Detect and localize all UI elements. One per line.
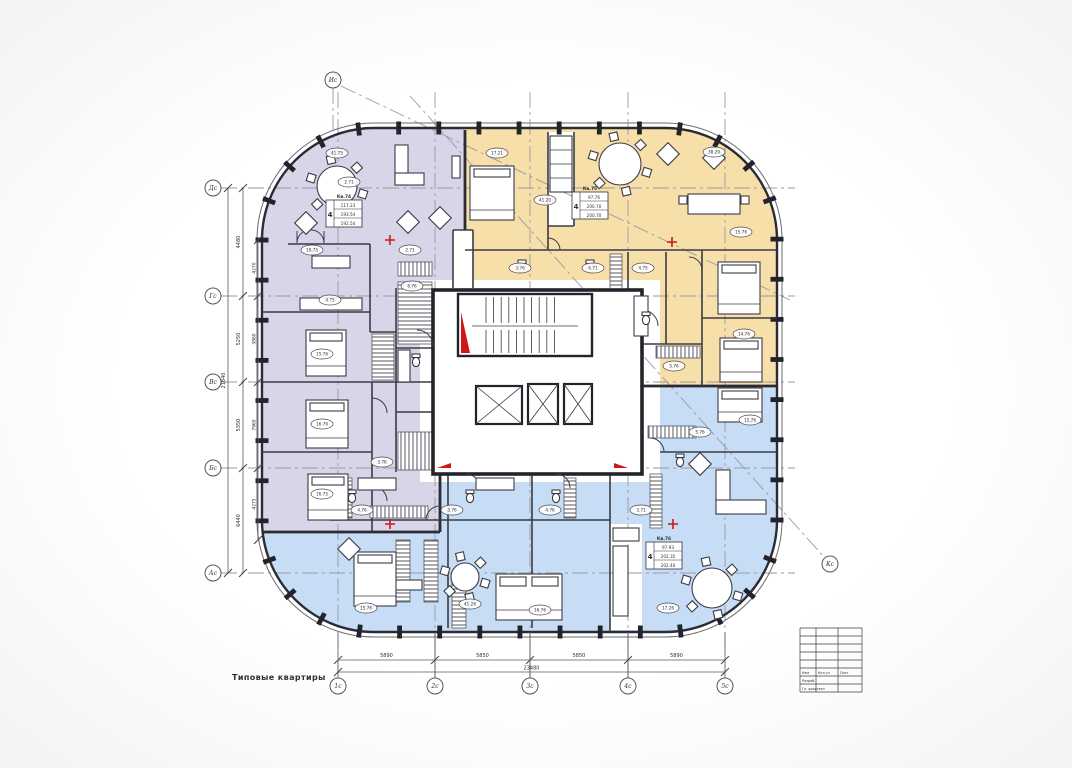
apartment-number: Кв.75 bbox=[583, 186, 597, 192]
drawing-note: Типовые квартиры bbox=[232, 673, 326, 682]
axis-left-label: Гс bbox=[208, 293, 217, 300]
room-area-label: 16.76 bbox=[534, 608, 546, 613]
facade-column-tick bbox=[256, 278, 269, 283]
chair bbox=[456, 552, 466, 562]
room-area-label: 2.71 bbox=[344, 180, 354, 185]
dim-value: 5890 bbox=[670, 653, 683, 659]
axis-left-label: Вс bbox=[208, 379, 217, 386]
kitchen-yellow bbox=[550, 136, 572, 192]
room-area-label: 14.76 bbox=[738, 332, 750, 337]
floorplan-drawing: ДсГсВсБсАс1с2с3с4с5сИсКс5890585058505890… bbox=[0, 0, 1072, 768]
facade-column-tick bbox=[771, 477, 784, 482]
bed bbox=[354, 552, 396, 606]
apartment-number: Кв.74 bbox=[337, 194, 351, 200]
room-area-label: 41.20 bbox=[539, 198, 551, 203]
stamp-area-value: 192.54 bbox=[341, 221, 356, 226]
axis-bottom-label: 2с bbox=[430, 683, 439, 690]
room-area-label: 16.76 bbox=[316, 422, 328, 427]
axis-bottom-label: 4с bbox=[623, 683, 632, 690]
facade-column-tick bbox=[477, 626, 482, 639]
dim-value: 5850 bbox=[476, 653, 489, 659]
bed bbox=[470, 166, 514, 220]
facade-column-tick bbox=[256, 358, 269, 363]
room-area-label: 17.26 bbox=[662, 606, 674, 611]
dim-value: 4275 bbox=[252, 498, 258, 509]
titleblock-label: Изм bbox=[802, 671, 809, 675]
room-area-label: 3.71 bbox=[636, 508, 646, 513]
facade-column-tick bbox=[637, 122, 642, 135]
bed-pillow bbox=[474, 169, 510, 177]
facade-column-tick bbox=[396, 122, 401, 135]
axis-bottom-label: 3с bbox=[526, 683, 534, 690]
stairwell bbox=[458, 294, 592, 356]
room-area-label: 5.76 bbox=[669, 364, 679, 369]
stamp-area-value: 97.76 bbox=[588, 195, 600, 200]
dim-value: 5350 bbox=[236, 419, 242, 432]
room-area-label: 41.26 bbox=[464, 602, 476, 607]
bed-pillow bbox=[500, 577, 526, 586]
facade-column-tick bbox=[770, 518, 783, 523]
facade-column-tick bbox=[255, 518, 268, 523]
room-area-label: 17.21 bbox=[491, 151, 503, 156]
chair bbox=[358, 189, 368, 199]
stamp-area-value: 200.70 bbox=[587, 204, 602, 209]
facade-column-tick bbox=[256, 478, 269, 483]
room-area-label: 38.20 bbox=[708, 150, 720, 155]
stamp-area-value: 193.54 bbox=[341, 212, 356, 217]
facade-column-tick bbox=[436, 122, 441, 135]
axis-diagonal-label: Кс bbox=[825, 561, 835, 568]
facade-column-tick bbox=[517, 122, 522, 135]
room-area-label: 3.76 bbox=[447, 508, 457, 513]
bed-pillow bbox=[722, 265, 756, 273]
stamp-area-value: 202.35 bbox=[661, 554, 676, 559]
facade-column-tick bbox=[771, 277, 784, 282]
room-area-label: 4.75 bbox=[638, 266, 648, 271]
facade-column-tick bbox=[771, 397, 784, 402]
axis-left-label: Ас bbox=[208, 570, 218, 577]
room-area-label: 6.76 bbox=[407, 284, 417, 289]
titleblock-label: Лист bbox=[840, 671, 849, 675]
floorplan-page: ДсГсВсБсАс1с2с3с4с5сИсКс5890585058505890… bbox=[0, 0, 1072, 768]
bed-pillow bbox=[310, 333, 342, 341]
stamp-room-count: 4 bbox=[328, 211, 333, 219]
chair bbox=[621, 187, 631, 197]
room-area-label: 3.76 bbox=[377, 460, 387, 465]
room-area-label: 41.75 bbox=[331, 151, 343, 156]
room-area-label: 6.71 bbox=[588, 266, 598, 271]
chair bbox=[701, 557, 711, 567]
stamp-area-value: 97.93 bbox=[662, 545, 674, 550]
facade-column-tick bbox=[256, 318, 269, 323]
facade-column-tick bbox=[397, 626, 402, 639]
facade-column-tick bbox=[597, 122, 602, 135]
titleblock-label: Гл. архитект bbox=[802, 687, 825, 691]
chair bbox=[733, 591, 743, 601]
titleblock-label: Кол.уч bbox=[818, 671, 830, 675]
room-area-label: 2.71 bbox=[405, 248, 415, 253]
dim-total-value: 21840 bbox=[221, 373, 227, 389]
stamp-room-count: 4 bbox=[648, 553, 653, 561]
bed bbox=[718, 262, 760, 314]
table-top bbox=[692, 568, 732, 608]
facade-column-tick bbox=[256, 438, 269, 443]
dim-value: 4270 bbox=[252, 262, 258, 273]
dim-value: 6440 bbox=[236, 514, 242, 527]
stamp-area-value: 117.23 bbox=[341, 203, 356, 208]
facade-column-tick bbox=[558, 626, 563, 639]
dim-value: 5890 bbox=[380, 653, 393, 659]
room-area-label: 4.76 bbox=[545, 508, 555, 513]
room-area-label: 15.76 bbox=[316, 352, 328, 357]
room-area-label: 3.76 bbox=[515, 266, 525, 271]
bed bbox=[720, 338, 762, 382]
chair bbox=[609, 132, 619, 142]
room-area-label: 4.75 bbox=[325, 298, 335, 303]
facade-column-tick bbox=[770, 237, 783, 242]
dim-value: 5850 bbox=[573, 653, 586, 659]
room-area-label: 5.76 bbox=[695, 430, 705, 435]
chair bbox=[306, 173, 316, 183]
apartment-number: Кв.76 bbox=[657, 536, 671, 542]
bed-pillow bbox=[312, 477, 344, 485]
chair bbox=[681, 575, 691, 585]
entry-hall-white bbox=[453, 230, 473, 282]
bed-pillow bbox=[358, 555, 392, 563]
dim-total-value: 23480 bbox=[524, 666, 540, 672]
sofa-yellow bbox=[679, 194, 749, 214]
table-top bbox=[451, 563, 479, 591]
room-area-label: 15.76 bbox=[735, 230, 747, 235]
facade-column-tick bbox=[557, 122, 562, 135]
room-area-label: 4.76 bbox=[357, 508, 367, 513]
titleblock: ИзмКол.учЛистРазраб.Гл. архитект bbox=[800, 628, 862, 692]
facade-column-tick bbox=[598, 626, 603, 639]
facade-column-tick bbox=[771, 437, 784, 442]
stamp-room-count: 4 bbox=[574, 203, 579, 211]
dim-value: 7960 bbox=[252, 419, 258, 430]
chair bbox=[588, 151, 598, 161]
facade-column-tick bbox=[771, 357, 784, 362]
bed bbox=[496, 574, 562, 620]
facade-column-tick bbox=[638, 626, 643, 639]
chair bbox=[642, 167, 652, 177]
axis-left-label: Бс bbox=[208, 465, 217, 472]
titleblock-label: Разраб. bbox=[802, 679, 815, 683]
facade-column-tick bbox=[518, 626, 523, 639]
building-core bbox=[433, 290, 642, 474]
chair bbox=[440, 566, 450, 576]
room-area-label: 16.75 bbox=[316, 492, 328, 497]
bed-pillow bbox=[722, 391, 758, 399]
chair bbox=[713, 610, 723, 620]
bed-pillow bbox=[310, 403, 344, 411]
facade-column-tick bbox=[437, 626, 442, 639]
bed-pillow bbox=[724, 341, 758, 349]
axis-bottom-label: 5с bbox=[721, 683, 729, 690]
table-top bbox=[599, 143, 641, 185]
axis-diagonal-label: Ис bbox=[328, 77, 338, 84]
dim-value: 3860 bbox=[252, 333, 258, 344]
room-area-label: 19.75 bbox=[306, 248, 318, 253]
dim-value: 4480 bbox=[236, 236, 242, 249]
dim-value: 5250 bbox=[236, 333, 242, 346]
axis-left-label: Дс bbox=[208, 185, 218, 192]
chair bbox=[480, 578, 490, 588]
bed-pillow bbox=[532, 577, 558, 586]
stamp-area-value: 202.40 bbox=[661, 563, 676, 568]
room-area-label: 15.76 bbox=[744, 418, 756, 423]
axis-bottom-label: 1с bbox=[334, 683, 342, 690]
room-area-label: 15.76 bbox=[360, 606, 372, 611]
facade-column-tick bbox=[477, 122, 482, 135]
facade-column-tick bbox=[256, 398, 269, 403]
stamp-area-value: 200.70 bbox=[587, 213, 602, 218]
